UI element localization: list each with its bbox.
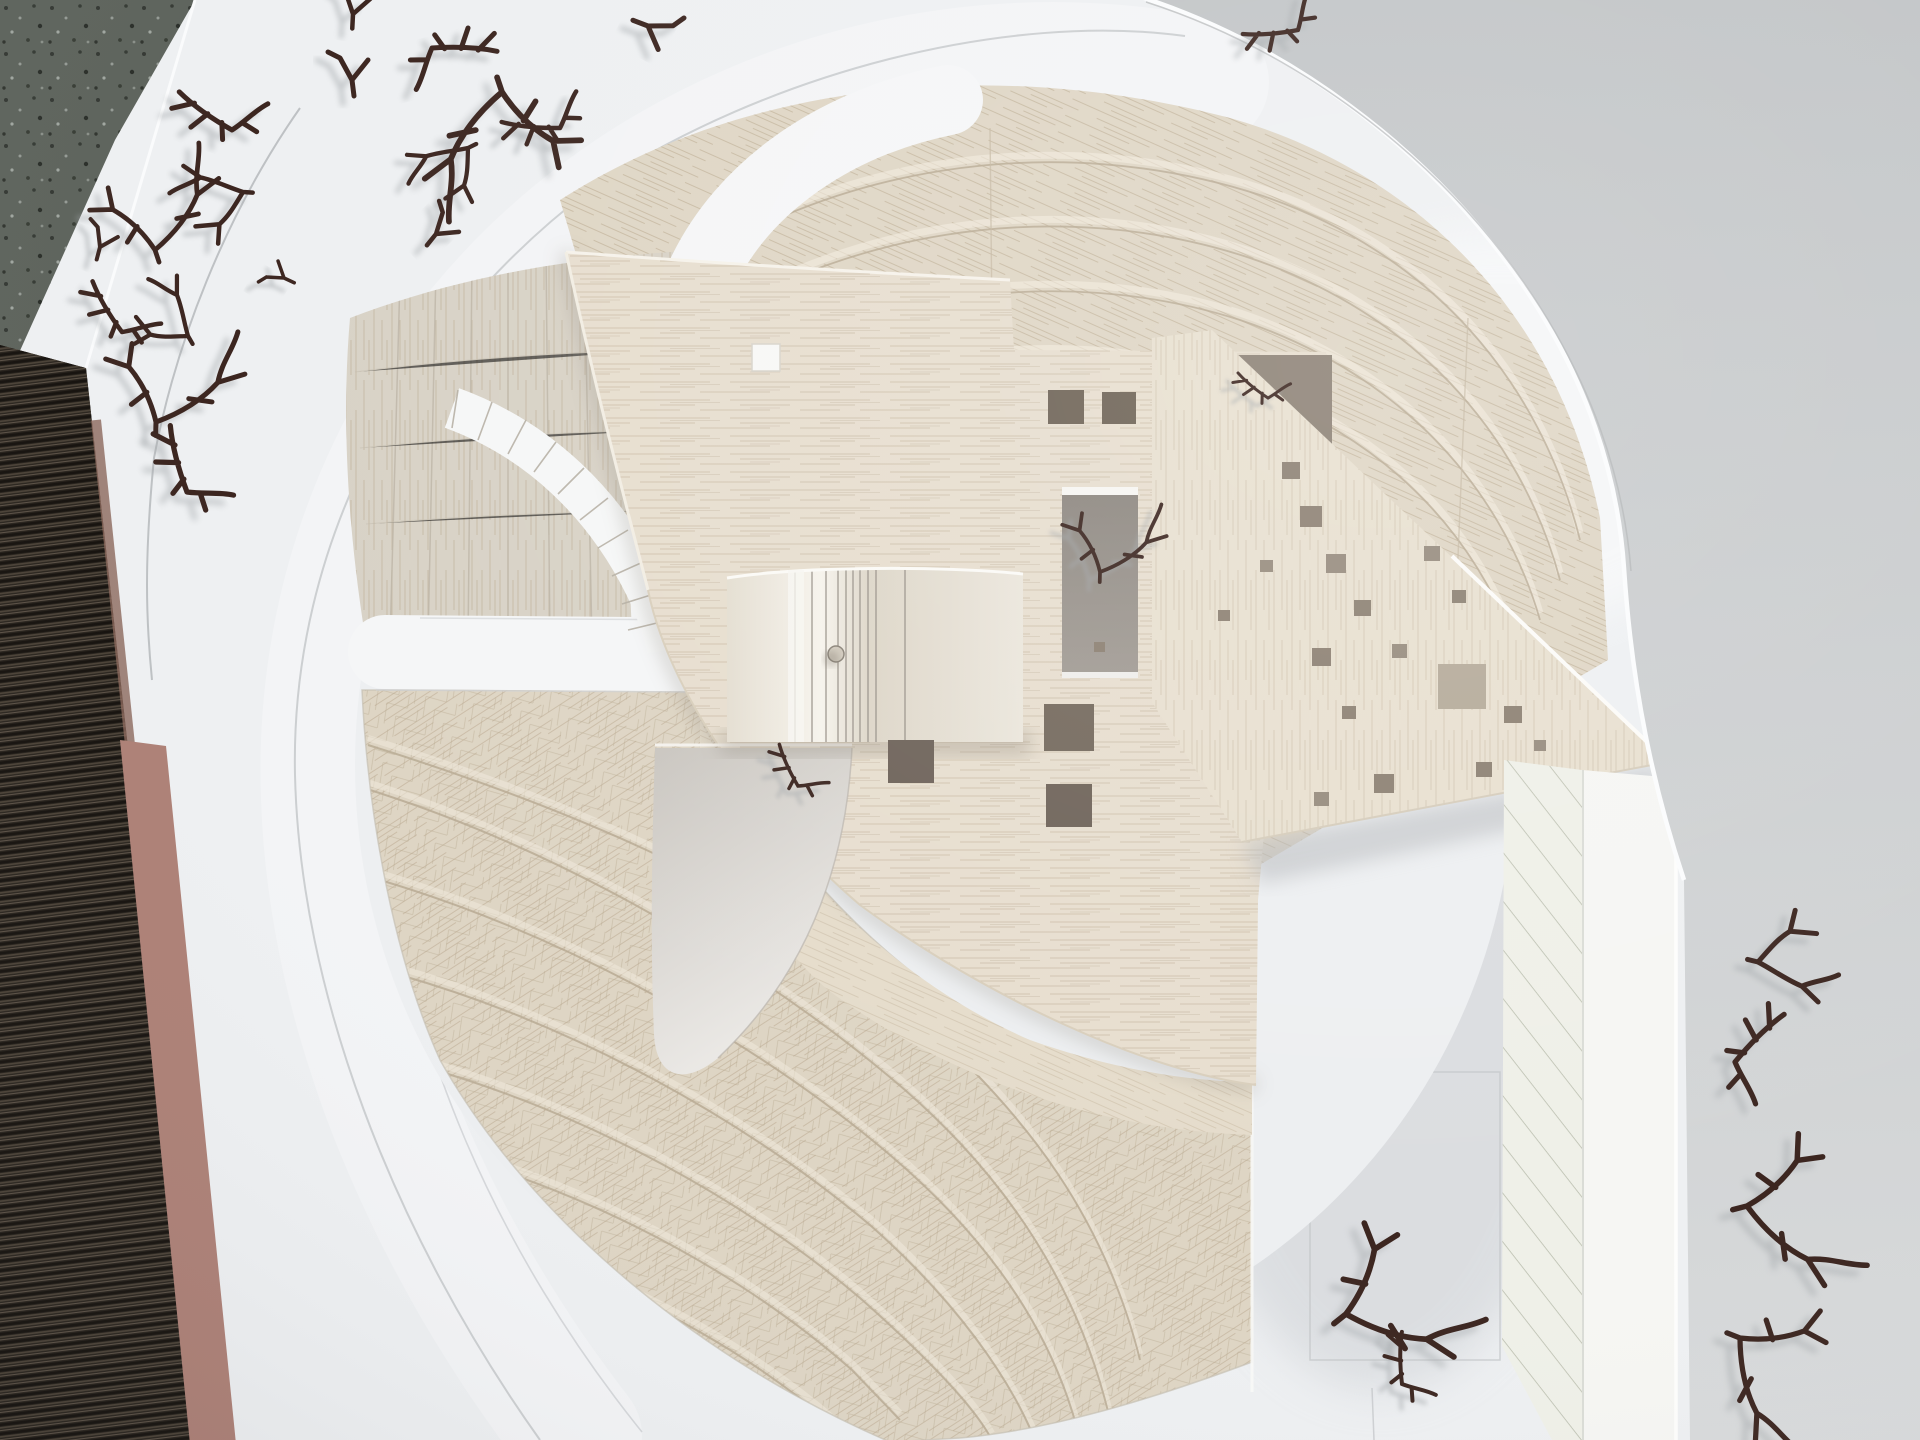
photo-vignette [0, 0, 1920, 1440]
architecture-model-photo [0, 0, 1920, 1440]
model-scene-canvas [0, 0, 1920, 1440]
